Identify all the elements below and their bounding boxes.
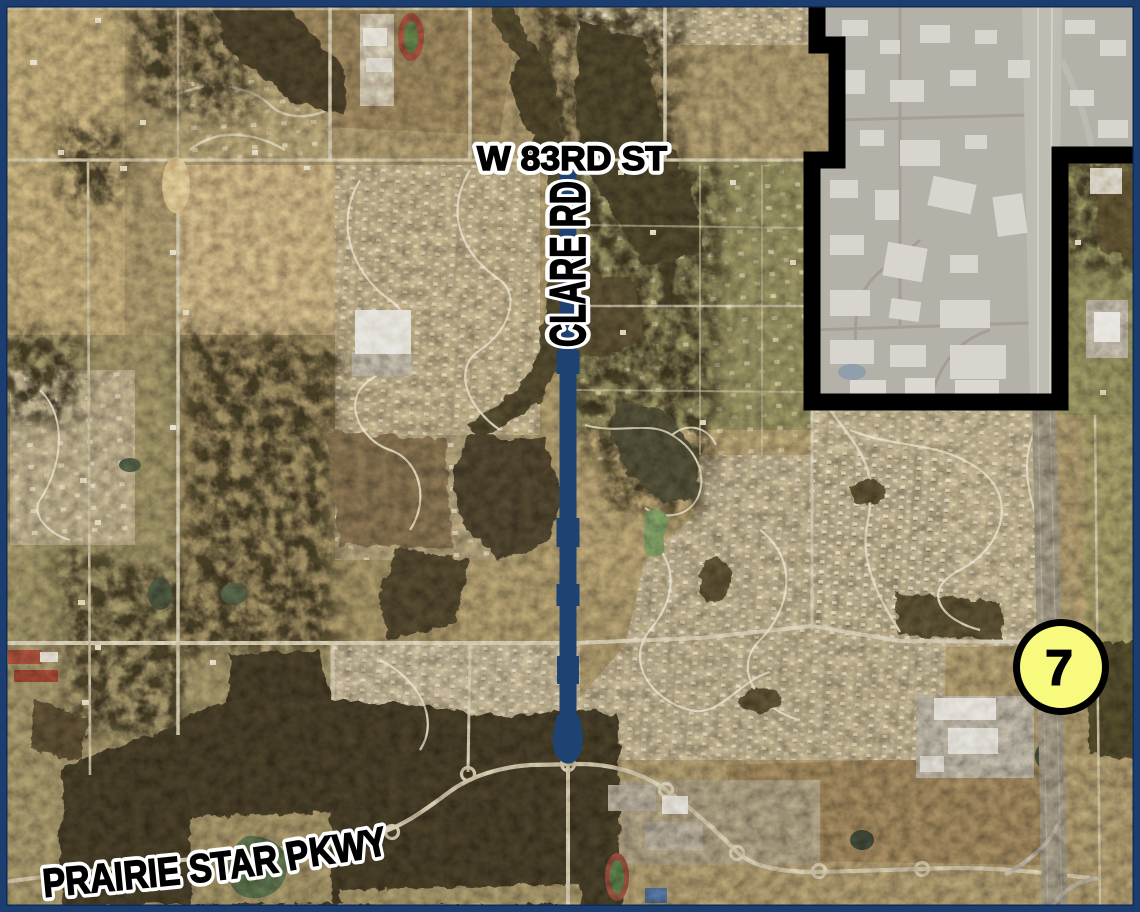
svg-text:W 83RD ST: W 83RD ST [477, 140, 667, 178]
svg-text:7: 7 [1045, 640, 1073, 696]
svg-text:CLARE RD: CLARE RD [540, 181, 596, 347]
